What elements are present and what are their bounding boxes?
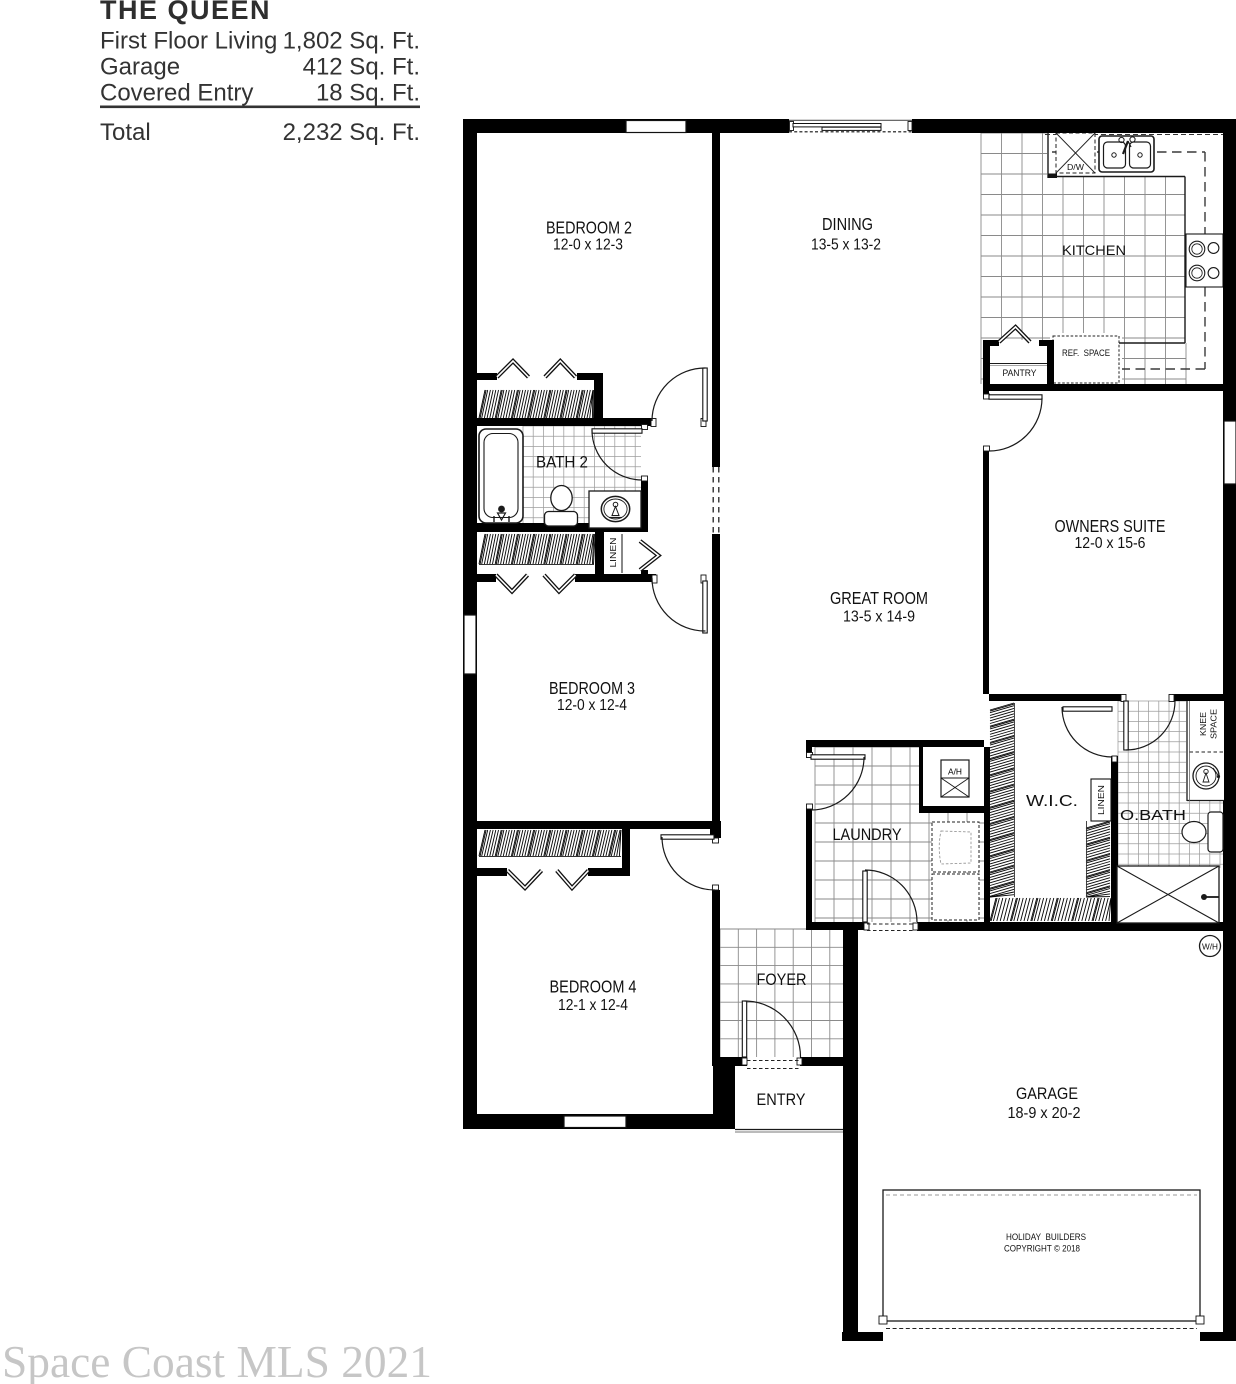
svg-text:OWNERS SUITE: OWNERS SUITE: [1055, 516, 1166, 536]
svg-text:GREAT ROOM: GREAT ROOM: [830, 588, 928, 608]
svg-text:Space Coast MLS 2021: Space Coast MLS 2021: [2, 1336, 432, 1384]
svg-text:COPYRIGHT © 2018: COPYRIGHT © 2018: [1004, 1244, 1080, 1255]
svg-text:1,802 Sq. Ft.: 1,802 Sq. Ft.: [283, 28, 420, 55]
svg-text:W.I.C.: W.I.C.: [1026, 793, 1078, 810]
svg-text:BEDROOM 3: BEDROOM 3: [549, 678, 635, 698]
svg-text:12-1 x 12-4: 12-1 x 12-4: [558, 997, 628, 1014]
svg-text:BATH 2: BATH 2: [536, 453, 588, 472]
svg-text:THE QUEEN: THE QUEEN: [100, 0, 271, 25]
svg-text:13-5 x 14-9: 13-5 x 14-9: [843, 609, 915, 626]
svg-text:12-0 x 15-6: 12-0 x 15-6: [1075, 535, 1146, 552]
svg-text:BEDROOM 4: BEDROOM 4: [550, 977, 637, 997]
svg-text:12-0 x 12-4: 12-0 x 12-4: [557, 697, 627, 714]
svg-text:LAUNDRY: LAUNDRY: [833, 826, 902, 844]
svg-text:13-5 x 13-2: 13-5 x 13-2: [811, 237, 881, 254]
svg-text:DINING: DINING: [822, 214, 873, 234]
svg-text:FOYER: FOYER: [757, 971, 807, 989]
svg-text:18-9 x 20-2: 18-9 x 20-2: [1008, 1105, 1081, 1122]
svg-text:KITCHEN: KITCHEN: [1062, 242, 1126, 258]
svg-text:KNEE: KNEE: [1198, 712, 1208, 736]
svg-text:REF. SPACE: REF. SPACE: [1062, 348, 1110, 358]
svg-text:18 Sq. Ft.: 18 Sq. Ft.: [316, 80, 420, 107]
svg-text:ENTRY: ENTRY: [757, 1091, 806, 1109]
svg-text:2,232 Sq. Ft.: 2,232 Sq. Ft.: [283, 119, 420, 146]
svg-text:412 Sq. Ft.: 412 Sq. Ft.: [303, 54, 420, 81]
svg-text:First Floor Living: First Floor Living: [100, 28, 277, 55]
svg-text:D/W: D/W: [1067, 162, 1084, 172]
svg-text:A/H: A/H: [948, 768, 962, 777]
svg-text:BEDROOM 2: BEDROOM 2: [546, 218, 632, 238]
svg-text:GARAGE: GARAGE: [1016, 1085, 1078, 1103]
svg-text:W/H: W/H: [1202, 943, 1218, 952]
svg-text:PANTRY: PANTRY: [1003, 368, 1038, 379]
svg-text:Covered Entry: Covered Entry: [100, 80, 253, 107]
svg-text:SPACE: SPACE: [1209, 709, 1219, 739]
svg-text:LINEN: LINEN: [608, 538, 618, 568]
svg-text:LINEN: LINEN: [1096, 785, 1106, 815]
svg-text:12-0 x 12-3: 12-0 x 12-3: [553, 237, 623, 254]
svg-text:Total: Total: [100, 119, 151, 146]
svg-text:HOLIDAY BUILDERS: HOLIDAY BUILDERS: [1006, 1232, 1086, 1243]
svg-text:Garage: Garage: [100, 54, 180, 81]
svg-text:O.BATH: O.BATH: [1120, 807, 1186, 824]
